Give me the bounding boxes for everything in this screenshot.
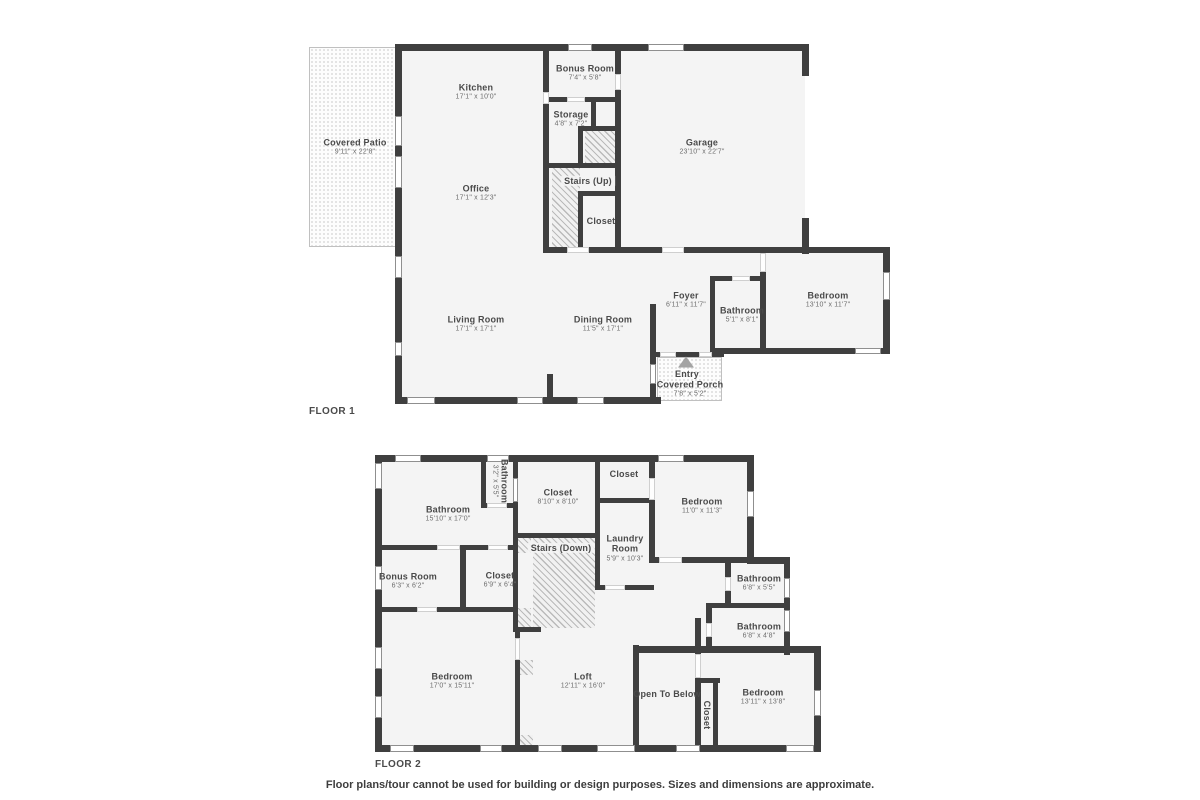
floor-1-door-marker: [615, 74, 621, 90]
floor-2-window-marker: [375, 647, 382, 669]
floor-2-wall: [633, 646, 821, 653]
floor-2-stairs-hatch: [520, 660, 533, 675]
floor-1-window-marker: [407, 397, 435, 404]
floor-2-window-marker: [676, 745, 700, 752]
floor-1-door-marker: [660, 352, 676, 357]
floor-2-stairs-hatch: [533, 538, 595, 628]
floor-1-wall: [710, 276, 715, 354]
floor-2-window-marker: [784, 578, 790, 598]
floor-2-wall: [595, 455, 600, 590]
floor-2-wall: [375, 455, 754, 462]
floor-2-wall: [649, 500, 655, 563]
floor-1-door-marker: [543, 92, 549, 104]
entry-arrow-icon: [678, 357, 694, 368]
floor-2-window-marker: [375, 696, 382, 718]
floor-2-door-marker: [437, 545, 460, 550]
floor-2-wall: [515, 660, 520, 750]
floor-2-wall: [682, 557, 790, 563]
floor-2-wall: [466, 545, 490, 550]
floor-1-door-marker: [760, 253, 766, 272]
floor-1-wall: [578, 126, 583, 168]
floor-2-window-marker: [487, 455, 509, 462]
floor-1-window-marker: [395, 116, 402, 146]
floor-1-wall: [684, 247, 889, 253]
disclaimer-text: Floor plans/tour cannot be used for buil…: [326, 779, 874, 791]
floor-2-label: FLOOR 2: [375, 759, 421, 770]
floor-1-wall: [395, 44, 809, 51]
floor-2-wall: [481, 455, 486, 508]
floor-2-wall: [633, 645, 639, 750]
floor-2-wall: [513, 627, 541, 632]
floor-2-wall: [706, 607, 712, 623]
floor-2-window-marker: [390, 745, 414, 752]
floor-2-door-marker: [706, 623, 712, 637]
floor-2-wall: [706, 603, 790, 608]
floor-2-window-marker: [597, 745, 635, 752]
floor-1-label: FLOOR 1: [309, 406, 355, 417]
floor-2-window-marker: [786, 745, 814, 752]
floor-2-room-area: [751, 560, 787, 748]
floor-2-window-marker: [480, 745, 502, 752]
floor-1-window-marker: [395, 256, 402, 278]
floor-1-door-marker: [699, 352, 712, 357]
floor-2-wall: [695, 678, 701, 750]
floor-1-stairs-hatch: [585, 130, 615, 163]
floor-2-wall: [649, 455, 655, 478]
floor-2-door-marker: [659, 557, 682, 563]
floor-1-door-marker: [567, 97, 585, 102]
floor-1-wall: [710, 276, 732, 281]
floor-2-wall: [649, 557, 659, 563]
floor-2-door-marker: [649, 478, 655, 500]
floor-2-door-marker: [515, 638, 520, 660]
floor-1-window-marker: [650, 364, 656, 384]
floor-1-window-marker: [883, 272, 890, 300]
floor-1-wall: [578, 191, 621, 196]
floor-1-wall: [589, 247, 662, 253]
floor-2-window-marker: [375, 463, 382, 489]
floor-1-window-marker: [517, 397, 543, 404]
floor-2-door-marker: [487, 503, 507, 508]
floor-1-outdoor-area: [309, 47, 399, 247]
floor-1-wall: [883, 247, 890, 354]
floor-1-wall: [615, 44, 621, 74]
floor-2-door-marker: [695, 654, 701, 678]
floor-2-window-marker: [784, 610, 790, 632]
floor-2-wall: [508, 545, 518, 550]
floor-2-wall: [460, 545, 466, 612]
floor-1-wall: [615, 90, 621, 253]
floor-2-door-marker: [417, 607, 437, 612]
floor-1-wall: [650, 352, 660, 357]
floor-2-wall: [437, 607, 518, 612]
floor-2-wall: [595, 585, 605, 590]
floor-2-window-marker: [375, 566, 382, 590]
floor-1-wall: [578, 191, 583, 253]
floor-1-window-marker: [395, 342, 402, 356]
floor-1-window-marker: [577, 397, 604, 404]
floor-1-window-marker: [648, 44, 684, 51]
floor-2-window-marker: [513, 478, 518, 502]
floor-1-door-marker: [662, 247, 684, 253]
floor-2-wall: [375, 545, 437, 550]
floor-1-wall: [802, 44, 809, 76]
floor-2-stairs-hatch: [518, 608, 531, 628]
floor-1-room-area: [398, 250, 656, 400]
floor-1-wall: [543, 44, 549, 92]
floor-1-window-marker: [395, 156, 402, 188]
floor-2-wall: [595, 498, 654, 503]
floor-2-wall: [713, 678, 718, 750]
floor-1-door-marker: [567, 247, 589, 253]
floor-2-door-marker: [725, 577, 731, 591]
floor-2-window-marker: [395, 455, 421, 462]
floor-1-room-area: [656, 250, 886, 354]
floor-1-stairs-hatch: [552, 168, 580, 250]
floor-1-wall: [543, 163, 621, 168]
floor-1-window-marker: [855, 348, 881, 354]
floor-1-wall: [543, 104, 549, 253]
floor-1-wall: [760, 272, 766, 354]
floor-2-wall: [513, 533, 600, 538]
floor-1-wall: [578, 126, 621, 131]
floor-2-stairs-hatch: [518, 538, 531, 553]
floor-2-wall: [695, 678, 720, 683]
floor-2-wall: [625, 585, 654, 590]
floor-2-door-marker: [488, 545, 508, 550]
floor-1-wall: [547, 374, 553, 404]
floor-1-door-marker: [732, 276, 750, 281]
floor-2-window-marker: [814, 690, 821, 716]
floor-1-window-marker: [568, 44, 592, 51]
floor-2-wall: [375, 607, 417, 612]
floor-2-door-marker: [605, 585, 625, 590]
floor-2-window-marker: [658, 455, 684, 462]
floor-2-window-marker: [747, 491, 754, 517]
floor-2-wall: [725, 563, 731, 577]
floor-2-window-marker: [538, 745, 562, 752]
floor-plan-canvas: Covered Patio9'11" x 22'8"Kitchen17'1" x…: [0, 0, 1200, 800]
